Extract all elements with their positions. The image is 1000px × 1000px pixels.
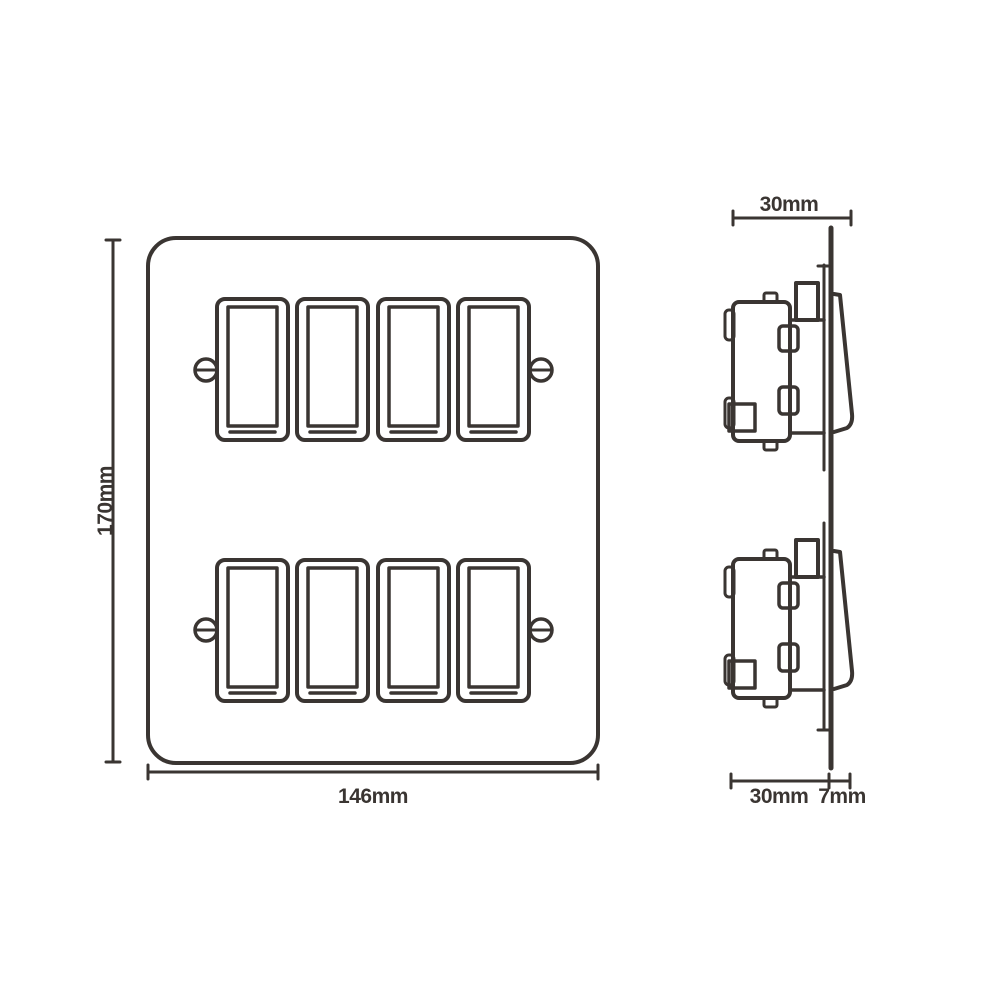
mechanism-depth-dimension-label: 30mm: [750, 785, 809, 808]
rocker-row-1: [195, 299, 552, 440]
width-dimension: [148, 765, 598, 779]
screw-right: [530, 359, 552, 381]
terminal-bump-left-upper: [725, 310, 734, 340]
height-dimension-label: 170mm: [94, 466, 117, 536]
screw-right: [530, 619, 552, 641]
rocker-unit: [297, 560, 368, 701]
width-dimension-label: 146mm: [338, 785, 408, 808]
rocker-unit: [378, 560, 449, 701]
rocker-pivot-housing: [796, 283, 818, 320]
rocker-projection-dimension-label: 7mm: [818, 785, 866, 808]
mounting-lug-bottom: [764, 441, 777, 450]
rocker-face: [469, 568, 518, 687]
rocker-profile: [834, 294, 852, 432]
rocker-face: [389, 568, 438, 687]
side-view: [725, 228, 852, 768]
rocker-unit: [217, 299, 288, 440]
screw-left: [195, 359, 217, 381]
rocker-pivot-housing: [796, 540, 818, 577]
rocker-face: [228, 307, 277, 426]
rocker-unit: [458, 299, 529, 440]
screw-left: [195, 619, 217, 641]
rocker-face: [308, 568, 357, 687]
rocker-face: [308, 307, 357, 426]
rocker-row-2: [195, 560, 552, 701]
mechanism-body: [733, 559, 790, 698]
rocker-unit: [458, 560, 529, 701]
switch-plate-technical-drawing: 146mm 170mm 30mm 30mm 7mm: [0, 0, 1000, 1000]
rocker-face: [469, 307, 518, 426]
mounting-lug-top: [764, 293, 777, 302]
terminal-bump-left-upper: [725, 567, 734, 597]
rocker-face: [228, 568, 277, 687]
front-view: [148, 238, 598, 763]
mounting-lug-top: [764, 550, 777, 559]
rocker-face: [389, 307, 438, 426]
rocker-unit: [378, 299, 449, 440]
mounting-lug-bottom: [764, 698, 777, 707]
rocker-profile: [834, 551, 852, 689]
mechanism-body: [733, 302, 790, 441]
rocker-unit: [297, 299, 368, 440]
drawing-canvas: 146mm 170mm 30mm 30mm 7mm: [0, 0, 1000, 1000]
total-depth-dimension-label: 30mm: [760, 193, 819, 216]
rocker-unit: [217, 560, 288, 701]
